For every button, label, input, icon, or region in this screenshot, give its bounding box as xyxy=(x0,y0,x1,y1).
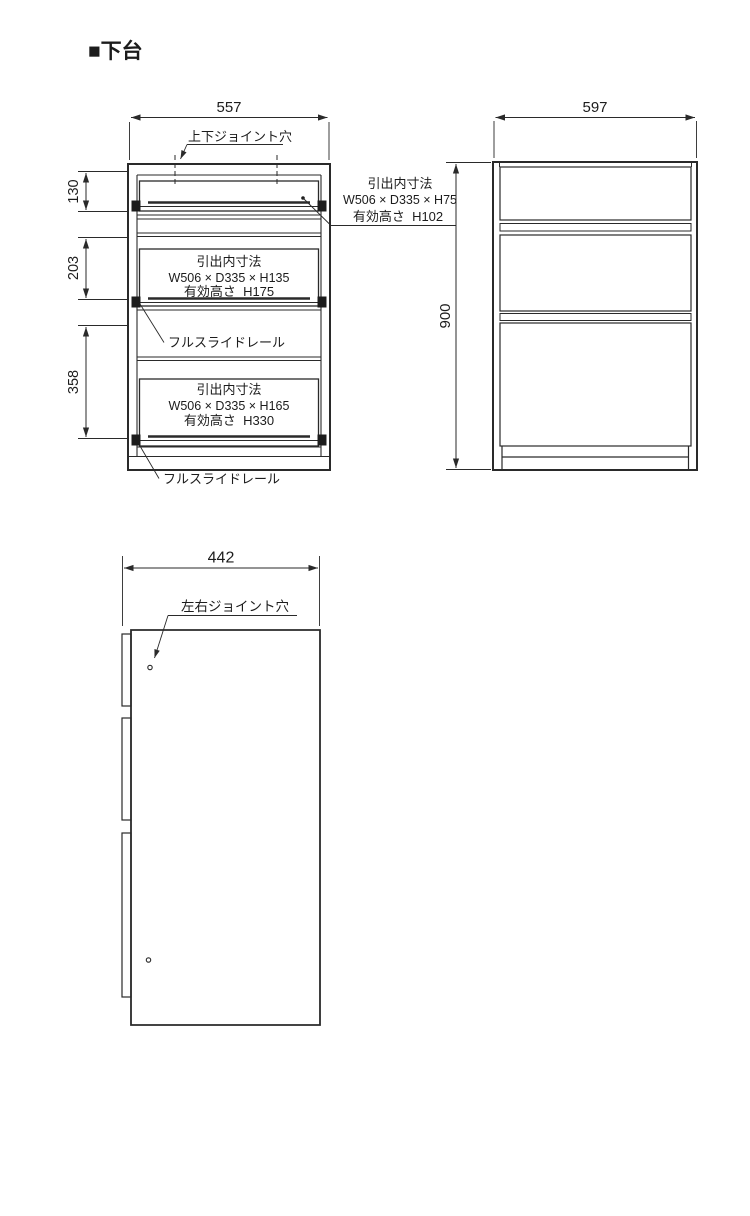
drawer2-note-line3: 有効高さ H175 xyxy=(184,284,274,299)
depth-body-outline xyxy=(131,630,320,1025)
side-divider-strip-2 xyxy=(500,314,691,321)
dim-text-130: 130 xyxy=(66,179,82,203)
top-joint-leader-line xyxy=(181,145,188,160)
page-title: ■下台 xyxy=(88,39,143,63)
slide-rail-label-2: フルスライドレール xyxy=(163,472,280,487)
side-height-dim-text: 900 xyxy=(437,303,454,328)
joint-hole-top xyxy=(148,665,152,669)
drawer1-note-line3: 有効高さ H102 xyxy=(353,209,443,224)
depth-drawer1-edge xyxy=(122,634,131,706)
drawer2-note: 引出内寸法 W506 × D335 × H135 有効高さ H175 xyxy=(169,254,290,299)
depth-view: 442 左右ジョイント穴 xyxy=(122,550,320,1026)
depth-drawer2-edge xyxy=(122,718,131,820)
depth-joint-leader-line xyxy=(155,616,169,659)
dim-text-358: 358 xyxy=(66,370,82,394)
slide-rail-leader-2 xyxy=(140,446,159,479)
drawer2-note-line2: W506 × D335 × H135 xyxy=(169,271,290,285)
side-view: 597 900 xyxy=(437,99,697,470)
drawer3-note-line2: W506 × D335 × H165 xyxy=(169,399,290,413)
drawer1-note-line1: 引出内寸法 xyxy=(367,176,432,191)
joint-hole-bottom xyxy=(146,958,150,962)
side-drawer3-front xyxy=(500,323,691,446)
side-width-dim-text: 597 xyxy=(582,99,607,116)
drawer2-note-line1: 引出内寸法 xyxy=(196,254,261,269)
depth-drawer3-edge xyxy=(122,833,131,997)
dim-text-203: 203 xyxy=(66,256,82,280)
technical-drawing-canvas: ■下台 557 上下ジョイント穴 130 203 358 引出内 xyxy=(0,0,750,1216)
side-base-lines xyxy=(502,446,689,470)
slide-rail-label-1: フルスライドレール xyxy=(168,335,285,350)
side-divider-strip-1 xyxy=(500,224,691,232)
drawing-page: ■下台 557 上下ジョイント穴 130 203 358 引出内 xyxy=(0,0,750,1216)
drawer1-note-line2: W506 × D335 × H75 xyxy=(343,193,457,207)
side-drawer1-front xyxy=(500,167,691,220)
front-view: 557 上下ジョイント穴 130 203 358 引出内寸法 W506 × D3… xyxy=(66,99,457,487)
drawer3-note: 引出内寸法 W506 × D335 × H165 有効高さ H330 xyxy=(169,382,290,428)
front-width-dim-text: 557 xyxy=(216,99,241,116)
drawer3-note-line1: 引出内寸法 xyxy=(196,382,261,397)
drawer3-note-line3: 有効高さ H330 xyxy=(184,413,274,428)
top-joint-hole-label: 上下ジョイント穴 xyxy=(188,129,292,144)
depth-width-dim-text: 442 xyxy=(208,550,235,567)
depth-joint-hole-label: 左右ジョイント穴 xyxy=(181,599,289,614)
side-cabinet-outline xyxy=(493,162,697,470)
side-width-extension-lines xyxy=(494,121,697,158)
side-drawer2-front xyxy=(500,235,691,311)
